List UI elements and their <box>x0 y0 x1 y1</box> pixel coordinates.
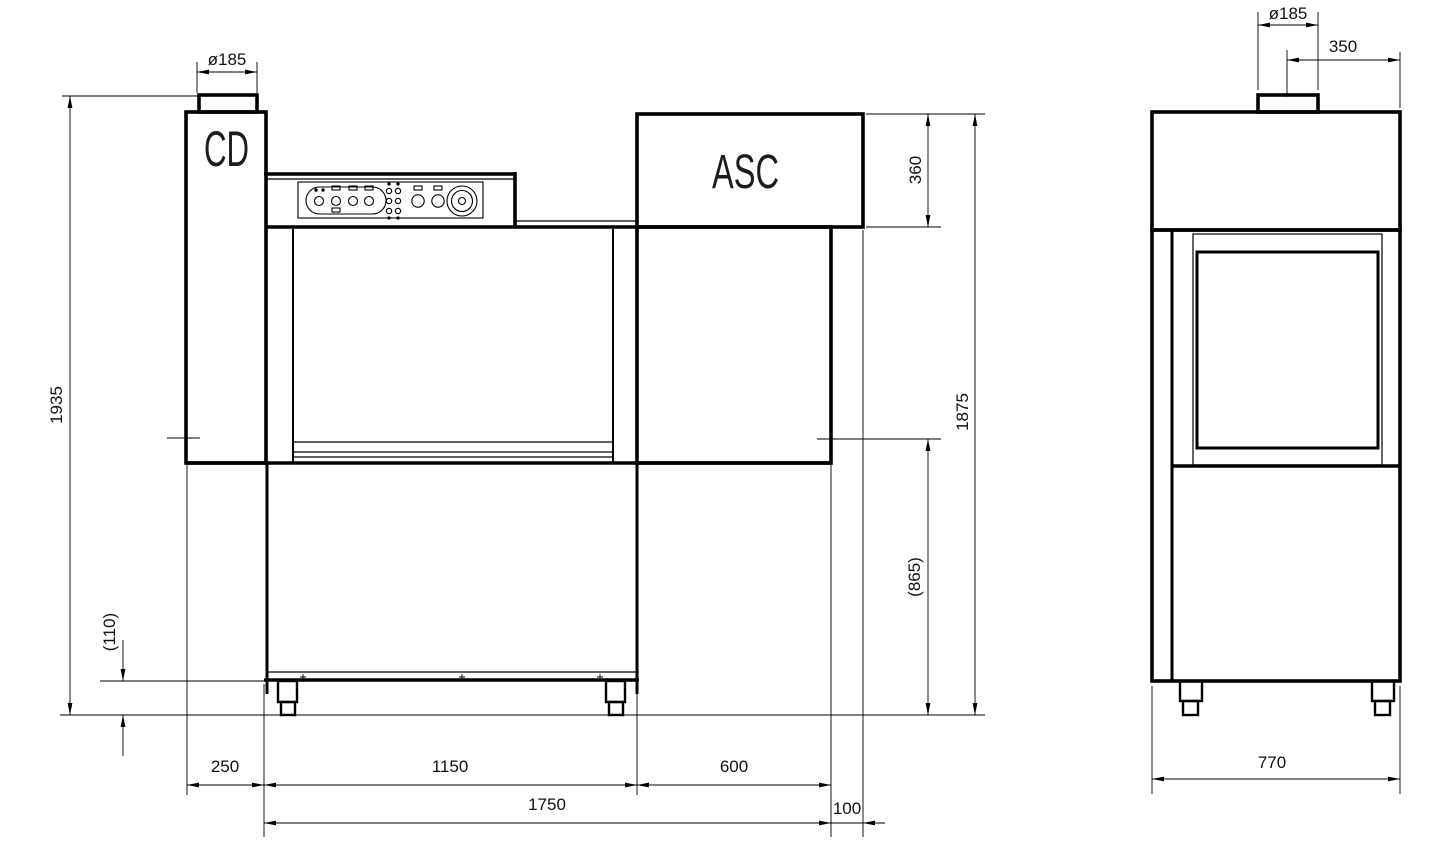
foot-left-upper <box>278 681 297 702</box>
status-led-icon <box>386 208 391 213</box>
status-led-icon <box>395 198 400 203</box>
status-led-icon <box>386 188 391 193</box>
status-led-icon <box>386 198 391 203</box>
chimney-side <box>1258 95 1318 112</box>
indicator-slot-icon <box>434 186 442 190</box>
status-led-icon <box>395 208 400 213</box>
status-dot-icon <box>397 217 399 219</box>
indicator-slot-icon <box>414 186 422 190</box>
indicator-slot-icon <box>332 208 340 212</box>
dim-left-overhang: 250 <box>211 757 239 776</box>
dim-loading-height: (865) <box>905 557 924 597</box>
round-button-icon[interactable] <box>432 195 444 207</box>
side-feet <box>1180 681 1394 715</box>
side-top-box <box>1152 112 1400 230</box>
side-foot-right-lower <box>1375 701 1390 715</box>
dim-chimney-diameter-front: ø185 <box>208 50 247 69</box>
dim-right-overhang: 100 <box>833 799 861 818</box>
panel-button-icon[interactable] <box>349 197 358 206</box>
front-extension-lines <box>62 62 985 837</box>
dim-chimney-offset: 350 <box>1329 37 1357 56</box>
dim-body-height: 1875 <box>953 393 972 431</box>
asc-unit-label: ASC <box>712 146 779 199</box>
foot-right-lower <box>609 702 623 715</box>
status-dot-icon <box>388 183 390 185</box>
front-dimension-lines <box>70 72 975 823</box>
side-body <box>1152 230 1400 681</box>
hood-tracks <box>293 442 613 457</box>
foot-left-lower <box>281 702 295 715</box>
panel-button-icon[interactable] <box>315 197 324 206</box>
panel-button-icon[interactable] <box>365 197 374 206</box>
round-button-icon[interactable] <box>412 195 424 207</box>
panel-button-icon[interactable] <box>332 197 341 206</box>
side-foot-left-upper <box>1180 681 1202 701</box>
control-panel <box>298 182 483 219</box>
side-door-outer <box>1193 234 1382 465</box>
dim-overall-height: 1935 <box>47 386 66 424</box>
front-feet <box>278 681 625 715</box>
right-section <box>637 227 831 463</box>
dim-right-section-length: 600 <box>720 757 748 776</box>
status-led-icon <box>395 188 400 193</box>
dim-asc-hood-height: 360 <box>906 156 925 184</box>
side-extension-lines <box>1152 12 1400 794</box>
chimney-front <box>199 95 257 112</box>
dim-wash-section-length: 1150 <box>432 757 469 776</box>
dim-foot-height: (110) <box>100 613 119 651</box>
status-dot-icon <box>388 217 390 219</box>
indicator-dot-icon <box>322 189 324 191</box>
side-foot-right-upper <box>1372 681 1394 701</box>
dim-overall-length: 1750 <box>528 795 566 814</box>
cd-unit-label: CD <box>204 121 249 177</box>
dishwasher-dimension-drawing: CD ASC <box>0 0 1456 853</box>
indicator-dot-icon <box>315 189 317 191</box>
foot-right-upper <box>606 681 625 702</box>
side-door-inner <box>1197 252 1378 448</box>
status-dot-icon <box>397 183 399 185</box>
dim-depth: 770 <box>1258 753 1286 772</box>
side-foot-left-lower <box>1183 701 1198 715</box>
dial-knob-icon[interactable] <box>452 191 473 212</box>
dim-chimney-diameter-side: ø185 <box>1269 4 1308 23</box>
front-view: CD ASC <box>47 50 985 837</box>
side-dimension-lines <box>1152 25 1400 779</box>
side-view: ø185 350 770 <box>1152 4 1400 794</box>
dial-center-icon <box>459 198 466 205</box>
